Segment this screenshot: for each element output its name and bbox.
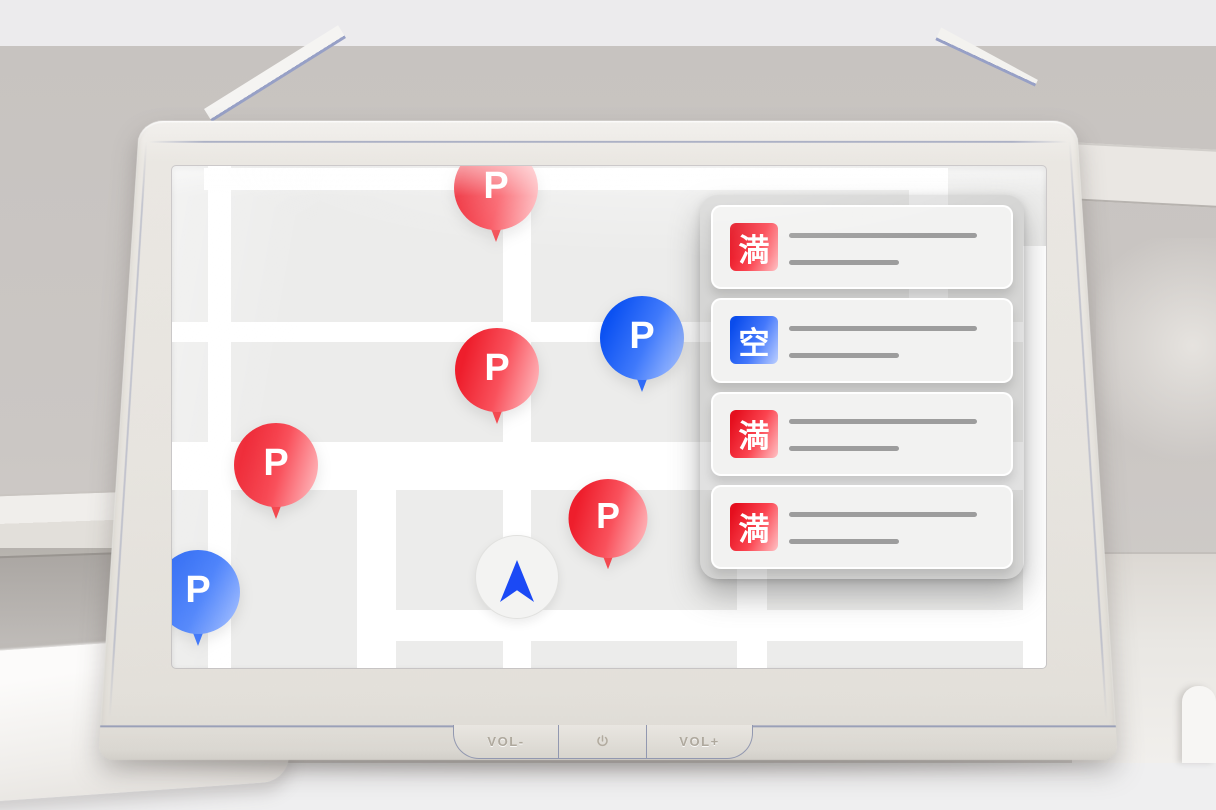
- parking-list-item[interactable]: 満: [711, 205, 1013, 289]
- parking-list-item[interactable]: 満: [711, 392, 1013, 476]
- map-pin-parking-full[interactable]: P: [234, 423, 318, 523]
- status-label: 満: [739, 225, 770, 270]
- parking-icon: P: [454, 166, 538, 230]
- volume-down-label: VOL-: [487, 734, 524, 749]
- power-button[interactable]: [558, 725, 648, 759]
- placeholder-lines: [789, 230, 977, 265]
- map-pin-parking-full[interactable]: P: [569, 479, 648, 573]
- volume-down-button[interactable]: VOL-: [453, 725, 559, 759]
- placeholder-text-line: [789, 233, 977, 238]
- map-pin-parking-full[interactable]: P: [455, 328, 539, 428]
- map-pin-parking-vacant[interactable]: P: [600, 296, 684, 396]
- ceiling-band: [0, 0, 1216, 46]
- map-road-vertical: [357, 490, 396, 668]
- placeholder-lines: [789, 323, 977, 358]
- pin-label: P: [263, 444, 288, 482]
- navigation-arrow-icon: [500, 560, 534, 602]
- car-dashboard-scene: P P P P P P: [0, 0, 1216, 810]
- volume-up-button[interactable]: VOL+: [646, 725, 753, 759]
- current-location-marker: [475, 535, 559, 619]
- pin-label: P: [483, 167, 508, 205]
- status-badge-full: 満: [730, 503, 778, 551]
- bezel-seam-top: [149, 141, 1067, 143]
- placeholder-text-line: [789, 419, 977, 424]
- parking-list: 満 空 満: [711, 205, 1013, 569]
- map-view[interactable]: P P P P P P: [172, 166, 1046, 668]
- parking-icon: P: [172, 550, 240, 634]
- map-road-vertical: [1023, 246, 1046, 668]
- status-badge-vacant: 空: [730, 316, 778, 364]
- map-road-horizontal: [204, 168, 948, 190]
- hardware-button-cluster: VOL- VOL+: [453, 725, 756, 759]
- parking-icon: P: [234, 423, 318, 507]
- display-screen[interactable]: P P P P P P: [172, 166, 1046, 668]
- volume-up-label: VOL+: [679, 734, 720, 749]
- parking-icon: P: [455, 328, 539, 412]
- map-road-horizontal: [362, 610, 1046, 641]
- dashboard-right-trim: [1072, 142, 1216, 208]
- map-pin-parking-vacant[interactable]: P: [172, 550, 240, 650]
- placeholder-text-line: [789, 539, 899, 544]
- dashboard-right-highlight: [1096, 238, 1216, 478]
- status-badge-full: 満: [730, 410, 778, 458]
- pin-label: P: [596, 499, 620, 535]
- dashboard-right-pillar: [1182, 686, 1216, 763]
- status-badge-full: 満: [730, 223, 778, 271]
- map-pin-parking-full[interactable]: P: [454, 166, 538, 246]
- parking-icon: P: [569, 479, 648, 558]
- placeholder-text-line: [789, 260, 899, 265]
- placeholder-text-line: [789, 446, 899, 451]
- pin-label: P: [629, 317, 654, 355]
- parking-list-item[interactable]: 空: [711, 298, 1013, 382]
- placeholder-text-line: [789, 326, 977, 331]
- placeholder-lines: [789, 509, 977, 544]
- placeholder-text-line: [789, 353, 899, 358]
- parking-icon: P: [600, 296, 684, 380]
- status-label: 空: [739, 318, 770, 363]
- status-label: 満: [739, 504, 770, 549]
- status-label: 満: [739, 411, 770, 456]
- power-icon: [595, 734, 610, 749]
- parking-list-item[interactable]: 満: [711, 485, 1013, 569]
- placeholder-text-line: [789, 512, 977, 517]
- parking-list-panel: 満 空 満: [700, 195, 1024, 579]
- pin-label: P: [484, 349, 509, 387]
- placeholder-lines: [789, 416, 977, 451]
- pin-label: P: [185, 571, 210, 609]
